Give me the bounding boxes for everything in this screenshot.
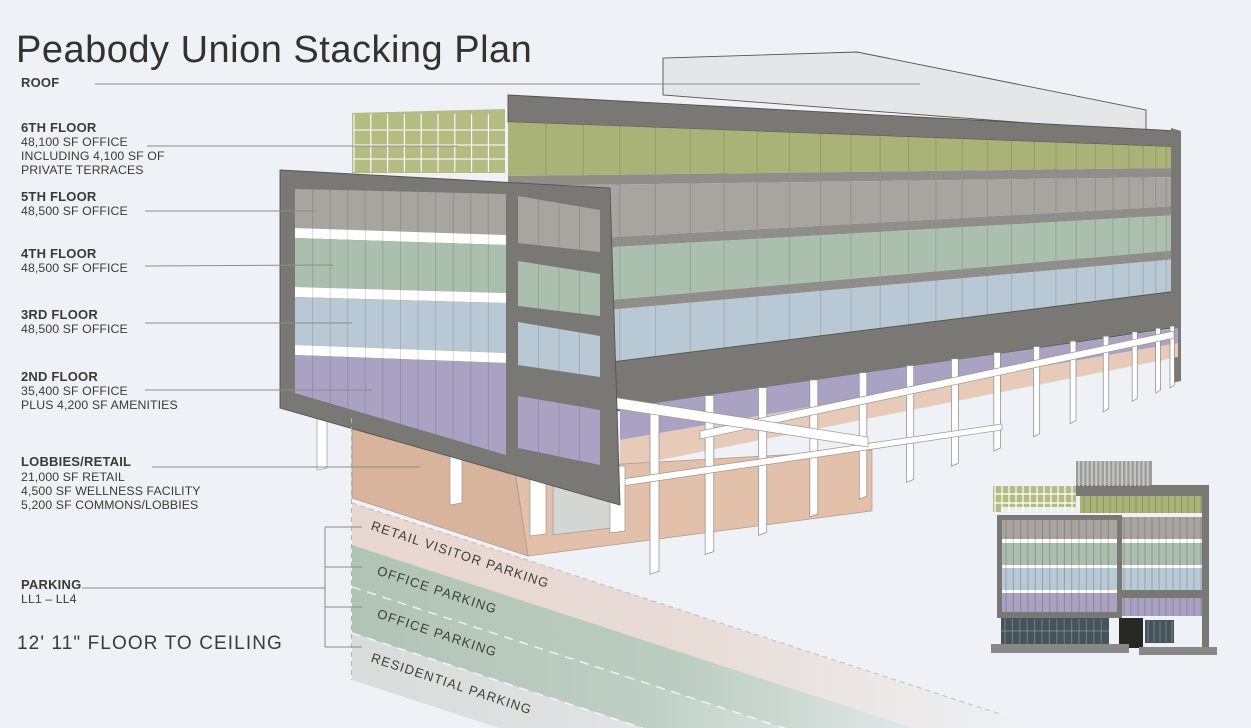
floor-label-5th: 5TH FLOOR (21, 189, 96, 204)
page-title: Peabody Union Stacking Plan (16, 29, 532, 72)
floor-detail: 21,000 SF RETAIL (21, 470, 125, 484)
floor-detail: LL1 – LL4 (21, 592, 77, 606)
floor-detail: 4,500 SF WELLNESS FACILITY (21, 484, 201, 498)
floor-detail: 48,500 SF OFFICE (21, 322, 128, 336)
floor-label-roof: ROOF (21, 75, 59, 90)
floor-detail: PLUS 4,200 SF AMENITIES (21, 398, 178, 412)
floor-detail: 48,100 SF OFFICE (21, 135, 128, 149)
floor-label-lobbies-retail: LOBBIES/RETAIL (21, 454, 131, 469)
floor-label-3rd: 3RD FLOOR (21, 307, 98, 322)
floor-detail: 5,200 SF COMMONS/LOBBIES (21, 498, 198, 512)
building-illustration (0, 0, 1251, 728)
floor-label-parking: PARKING (21, 577, 81, 592)
floor-label-4th: 4TH FLOOR (21, 246, 96, 261)
elevation-thumbnail (991, 461, 1217, 655)
floor-label-6th: 6TH FLOOR (21, 120, 96, 135)
floor-to-ceiling-note: 12' 11" FLOOR TO CEILING (17, 633, 283, 655)
floor-detail: 48,500 SF OFFICE (21, 204, 128, 218)
floor-detail: INCLUDING 4,100 SF OF (21, 149, 165, 163)
floor-label-2nd: 2ND FLOOR (21, 369, 98, 384)
stacking-plan-canvas: Peabody Union Stacking Plan ROOF 6TH FLO… (0, 0, 1251, 728)
floor-detail: 35,400 SF OFFICE (21, 384, 128, 398)
floor-detail: 48,500 SF OFFICE (21, 261, 128, 275)
floor-detail: PRIVATE TERRACES (21, 163, 144, 177)
